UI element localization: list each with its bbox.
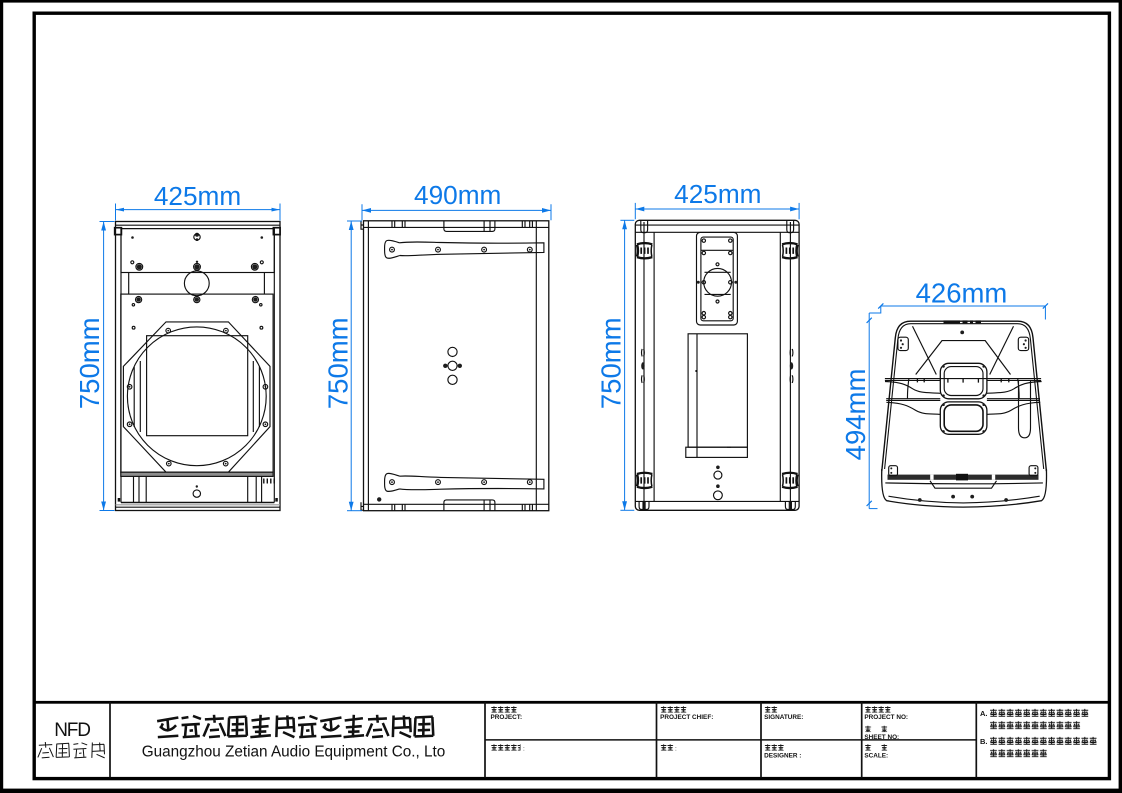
svg-text:B.: B.	[980, 737, 988, 746]
svg-text:494mm: 494mm	[840, 369, 871, 461]
svg-text:Guangzhou Zetian Audio Equipme: Guangzhou Zetian Audio Equipment Co., Lt…	[142, 744, 446, 761]
svg-text:SHEET NO:: SHEET NO:	[864, 734, 899, 741]
svg-text:NFD: NFD	[54, 720, 90, 741]
svg-text:425mm: 425mm	[154, 181, 241, 211]
svg-text:750mm: 750mm	[596, 317, 627, 409]
svg-text:SCALE:: SCALE:	[864, 753, 888, 760]
svg-text:750mm: 750mm	[322, 317, 353, 409]
svg-text::: :	[523, 746, 525, 753]
svg-text:490mm: 490mm	[414, 180, 501, 210]
svg-text::: :	[675, 746, 677, 753]
svg-text:A.: A.	[980, 709, 988, 718]
svg-text:426mm: 426mm	[916, 278, 1008, 309]
svg-text:425mm: 425mm	[674, 179, 761, 209]
svg-text:PROJECT NO:: PROJECT NO:	[864, 714, 908, 721]
svg-text:750mm: 750mm	[74, 317, 105, 409]
svg-text:DESIGNER :: DESIGNER :	[764, 753, 801, 760]
svg-text:SIGNATURE:: SIGNATURE:	[764, 714, 803, 721]
svg-text:PROJECT:: PROJECT:	[491, 714, 523, 721]
svg-text:PROJECT CHIEF:: PROJECT CHIEF:	[660, 714, 713, 721]
